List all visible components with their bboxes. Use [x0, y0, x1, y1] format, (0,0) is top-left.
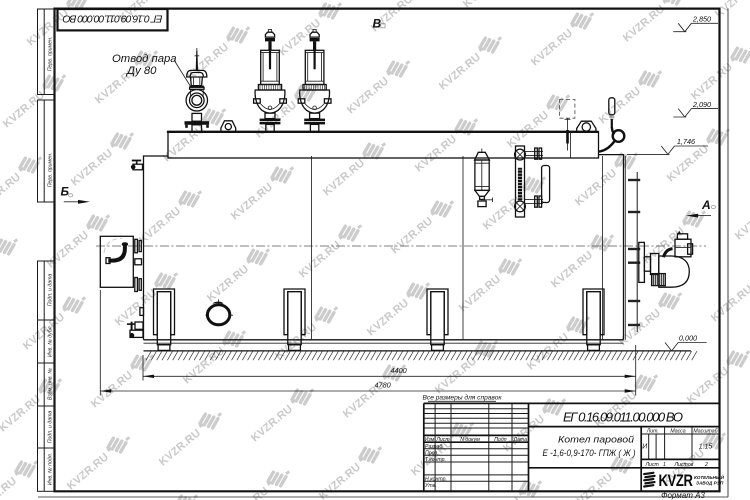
svg-text:Отвод пара: Отвод пара	[112, 53, 177, 65]
svg-text:N докум: N докум	[460, 437, 480, 443]
svg-text:Взам. инв. №: Взам. инв. №	[48, 368, 54, 400]
svg-text:Е -1,6-0,9-170- ГПЖ ( Ж ): Е -1,6-0,9-170- ГПЖ ( Ж )	[543, 448, 636, 458]
svg-text:Формат А3: Формат А3	[661, 491, 705, 500]
svg-text:Котел паровой: Котел паровой	[558, 435, 634, 445]
svg-text:КОТЕЛЬНЫЙ: КОТЕЛЬНЫЙ	[694, 473, 725, 480]
svg-text:KVZR: KVZR	[659, 471, 693, 490]
svg-text:Пров.: Пров.	[425, 450, 439, 456]
svg-text:1: 1	[663, 462, 666, 468]
svg-text:4400: 4400	[391, 366, 407, 375]
svg-text:Перв. примен.: Перв. примен.	[48, 153, 54, 187]
svg-text:Лист: Лист	[435, 437, 450, 443]
svg-text:Утв.: Утв.	[425, 483, 437, 489]
svg-text:4780: 4780	[375, 381, 391, 390]
svg-text:Дата: Дата	[512, 437, 527, 443]
svg-text:Лист: Лист	[645, 462, 660, 468]
svg-text:Изм: Изм	[425, 437, 435, 443]
svg-text:2,090: 2,090	[692, 100, 711, 109]
svg-text:Масса: Масса	[670, 428, 685, 434]
svg-text:Разраб.: Разраб.	[425, 444, 444, 450]
svg-text:ЕГ 0.16.09.011.00.000 ВО: ЕГ 0.16.09.011.00.000 ВО	[563, 410, 683, 425]
svg-text:В: В	[373, 16, 382, 30]
svg-text:ЕГ 0.16.09.011.00.000 ВО: ЕГ 0.16.09.011.00.000 ВО	[63, 13, 163, 25]
svg-text:Инв. № дубл.: Инв. № дубл.	[48, 325, 54, 357]
svg-text:Все размеры для справок: Все размеры для справок	[423, 394, 503, 402]
svg-text:Н.контр.: Н.контр.	[425, 476, 447, 482]
svg-text:Ду 80: Ду 80	[125, 65, 157, 77]
svg-text:А: А	[701, 198, 711, 212]
svg-text:Листов: Листов	[674, 462, 694, 468]
svg-text:Инв. № подл.: Инв. № подл.	[48, 453, 54, 485]
svg-text:1:15: 1:15	[699, 444, 713, 451]
svg-text:Т.контр.: Т.контр.	[425, 457, 446, 463]
svg-text:1,746: 1,746	[677, 137, 696, 146]
svg-text:Подп. и дата: Подп. и дата	[48, 411, 54, 444]
svg-text:Подп: Подп	[494, 437, 507, 443]
svg-text:2,850: 2,850	[692, 15, 711, 24]
svg-text:2: 2	[704, 462, 708, 468]
svg-text:Перв. примен.: Перв. примен.	[48, 37, 54, 71]
svg-text:Б: Б	[61, 185, 70, 199]
svg-text:Масштаб: Масштаб	[693, 428, 718, 434]
svg-text:0,000: 0,000	[679, 334, 697, 343]
svg-text:Лит.: Лит.	[646, 428, 659, 434]
svg-text:ЗАВОД РЭП: ЗАВОД РЭП	[696, 481, 724, 486]
svg-text:Подп. и дата: Подп. и дата	[48, 274, 54, 307]
